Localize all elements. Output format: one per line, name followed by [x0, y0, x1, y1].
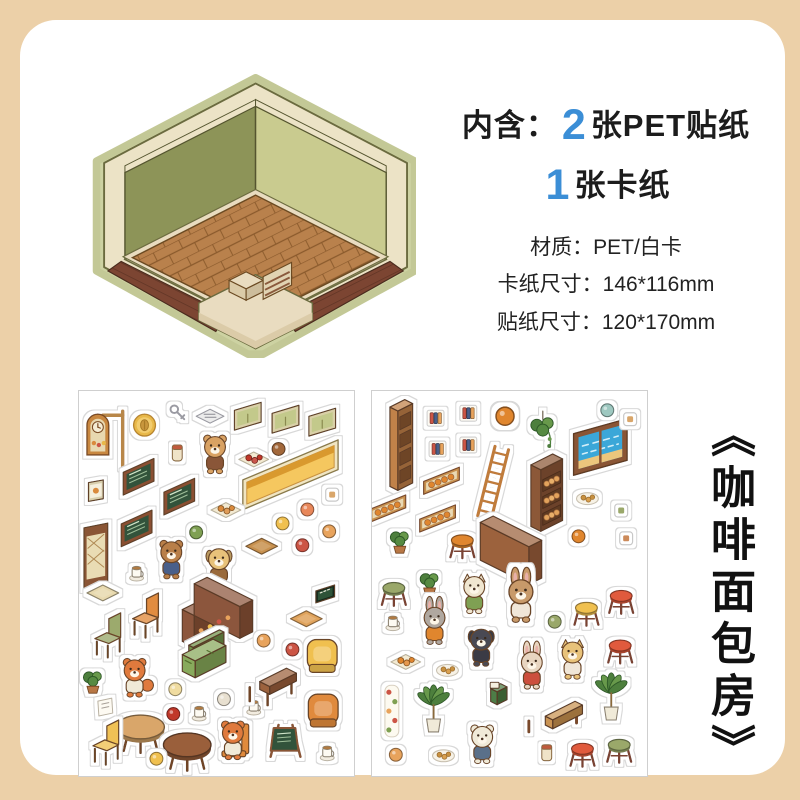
small-frame — [326, 488, 339, 501]
bread-bun — [276, 517, 289, 530]
contents-line-1: 内含：2张PET贴纸 — [448, 104, 764, 147]
pudding — [323, 525, 336, 538]
snack — [389, 748, 402, 761]
wooden-table — [250, 668, 297, 705]
stool-green — [607, 739, 631, 762]
palm-plant — [594, 673, 629, 720]
product-card: 内含：2张PET贴纸 1张卡纸 材质：PET/白卡 卡纸尺寸：146*116mm… — [20, 20, 785, 775]
sticker-sheet-1 — [78, 390, 355, 777]
round-table — [117, 715, 165, 753]
croissant-plate — [437, 664, 459, 676]
macaron — [301, 503, 314, 516]
bread-wall-shelf — [372, 495, 406, 522]
coffee-jar — [172, 445, 182, 461]
menu-chalkboard — [121, 510, 152, 547]
bread-tray — [391, 654, 421, 669]
contents-prefix: 内含： — [462, 108, 558, 143]
spec-material: 材质：PET/白卡 — [448, 229, 764, 266]
small-frame — [624, 413, 637, 426]
paper-cup — [130, 566, 144, 581]
cash-register — [490, 682, 507, 704]
plate-of-food — [239, 452, 269, 467]
card-label: 张卡纸 — [574, 168, 670, 203]
menu-stand — [271, 725, 301, 757]
yellow-cat — [562, 640, 584, 680]
cheese — [150, 752, 163, 765]
wooden-bench — [529, 701, 583, 732]
yellow-armchair — [307, 640, 337, 673]
beach-window — [574, 419, 628, 476]
tea-cup — [247, 700, 261, 715]
yellow-wall-shelf — [243, 440, 338, 510]
round-bread — [496, 407, 514, 425]
stool-red — [608, 640, 632, 663]
coffee-bean-coin — [134, 414, 156, 436]
note-paper — [98, 698, 113, 716]
orange-armchair — [308, 694, 338, 727]
bread-wall-shelf — [420, 505, 456, 532]
bunny-red-dress — [521, 641, 542, 689]
bread-wall-shelf — [424, 467, 460, 494]
book-sticker — [429, 441, 446, 457]
green-window — [272, 405, 299, 433]
bread-basket — [211, 503, 241, 518]
bear-eating — [471, 725, 494, 764]
page-background: 内含：2张PET贴纸 1张卡纸 材质：PET/白卡 卡纸尺寸：146*116mm… — [0, 0, 800, 800]
product-info: 内含：2张PET贴纸 1张卡纸 材质：PET/白卡 卡纸尺寸：146*116mm… — [448, 104, 764, 341]
newspaper — [196, 409, 224, 423]
coffee-cup — [320, 746, 334, 761]
bread-display-case — [531, 454, 563, 531]
flower-strip — [385, 685, 399, 737]
lattice-door — [84, 523, 108, 589]
book-sticker — [460, 437, 477, 453]
book-sticker — [427, 410, 444, 426]
small-plant — [83, 672, 101, 693]
cake-slice — [296, 539, 309, 552]
drink-cup — [548, 615, 561, 628]
stool-red — [609, 590, 633, 613]
small-plant — [390, 532, 408, 553]
wooden-ladder — [478, 446, 509, 519]
tall-shelf — [390, 400, 413, 491]
contents-line-2: 1张卡纸 — [448, 164, 764, 207]
spec-sticker-size: 贴纸尺寸：120*170mm — [448, 304, 764, 341]
oval-mirror — [601, 404, 614, 417]
green-chair — [95, 613, 121, 658]
product-title-vertical: 《咖啡面包房》 — [684, 410, 774, 778]
sticker-label: 张PET贴纸 — [591, 108, 750, 143]
acorn — [272, 443, 285, 456]
hanging-clock-sign — [87, 411, 123, 467]
spec-card-size: 卡纸尺寸：146*116mm — [448, 266, 764, 303]
teddy-bear-plush — [160, 540, 183, 579]
fox-running — [123, 658, 153, 697]
room-illustration — [80, 74, 416, 358]
bear-barista — [204, 435, 227, 474]
coffee-cup — [192, 706, 206, 721]
bread-bun — [572, 530, 585, 543]
menu-chalkboard — [164, 478, 195, 515]
stool-green — [382, 583, 406, 606]
coffee-sign — [316, 585, 335, 603]
hanging-plant — [531, 411, 553, 448]
cupcake — [257, 634, 270, 647]
gray-bunny — [424, 596, 445, 644]
sticker-sheet-2 — [371, 390, 648, 777]
salad-plate — [190, 526, 203, 539]
floor-mat — [290, 611, 322, 627]
jam — [167, 708, 180, 721]
cat-with-bread — [463, 574, 485, 614]
fox-on-chair — [221, 721, 248, 760]
plant-ball — [420, 574, 438, 595]
black-dog — [468, 629, 494, 666]
milk-bottle — [542, 745, 552, 761]
small-poster — [88, 480, 103, 502]
coffee-cup — [386, 616, 400, 631]
stool-yellow — [575, 602, 599, 625]
green-window — [234, 402, 261, 430]
card-count: 1 — [542, 161, 575, 209]
spec-list: 材质：PET/白卡 卡纸尺寸：146*116mm 贴纸尺寸：120*170mm — [448, 229, 764, 341]
cream-puff — [169, 683, 182, 696]
green-window — [309, 408, 336, 436]
cookie-plate — [433, 750, 455, 762]
cupcake — [286, 643, 299, 656]
stool-orange — [450, 535, 474, 558]
palm-plant — [416, 685, 451, 732]
yellow-chair — [93, 720, 119, 765]
small-frame — [620, 532, 633, 545]
small-frame — [615, 504, 628, 517]
orange-chair — [133, 593, 159, 638]
keys — [171, 405, 185, 419]
cookie-plate — [577, 493, 599, 505]
stool-red — [571, 743, 595, 766]
sticker-count: 2 — [558, 101, 591, 149]
cutting-board — [246, 538, 278, 554]
plate — [217, 693, 230, 706]
book-sticker — [460, 405, 477, 421]
menu-chalkboard — [123, 458, 154, 495]
round-table-dark — [163, 733, 211, 771]
